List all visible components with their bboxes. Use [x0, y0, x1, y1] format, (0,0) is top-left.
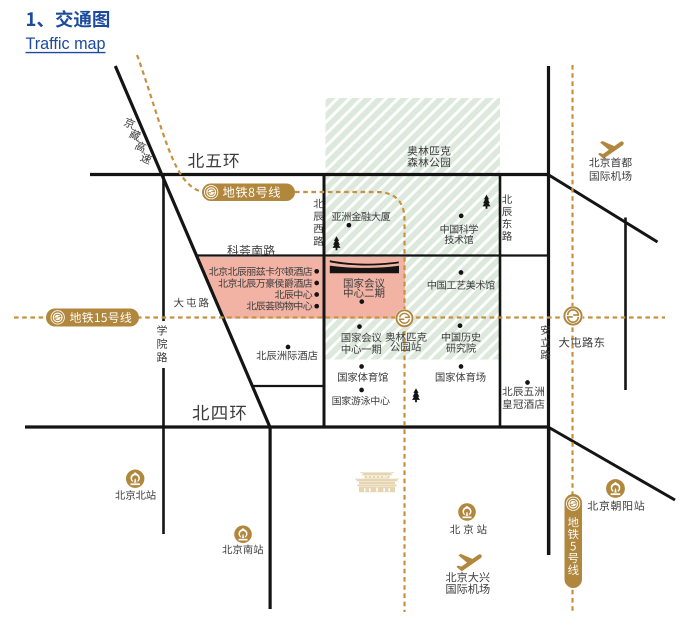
svg-text:Traffic map: Traffic map	[26, 35, 106, 53]
